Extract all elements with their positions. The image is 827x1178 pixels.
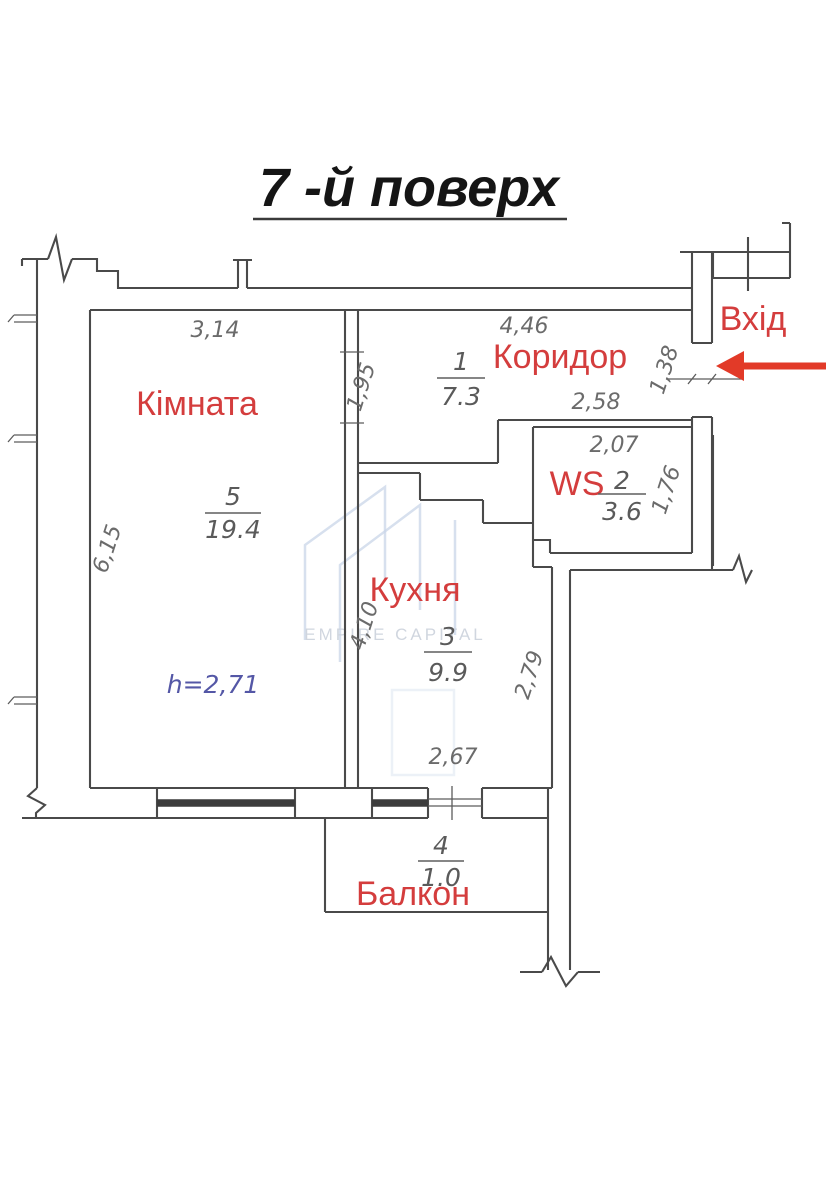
- floor-plan: EMPIRE CAPITAL 7 -й поверх: [0, 0, 827, 1178]
- entrance-arrow: [716, 351, 826, 381]
- watermark-text: EMPIRE CAPITAL: [304, 625, 486, 644]
- floor-plan-page: EMPIRE CAPITAL 7 -й поверх: [0, 0, 827, 1178]
- room-number-kukhnia: 3: [440, 622, 456, 651]
- wall-junction-tick: [8, 697, 37, 704]
- wall-kitchen-top-steps: [420, 473, 533, 523]
- dim-ws-top: 2,07: [590, 433, 639, 458]
- room-number-balkon: 4: [433, 831, 449, 860]
- balcony-door: [428, 786, 482, 820]
- room-number-ws: 2: [614, 466, 630, 495]
- room-number-korydor: 1: [453, 347, 469, 376]
- stairwell-walls: [680, 223, 790, 291]
- dim-kitchen-bottom: 2,67: [429, 745, 478, 770]
- wall-junction-tick: [8, 435, 37, 442]
- room-area-balkon: 1.0: [421, 863, 461, 892]
- wall-corridor-bottom-left: [358, 463, 498, 473]
- dim-ws-right: 1,76: [647, 463, 686, 517]
- stairwell: [680, 223, 790, 291]
- room-number-kimnata: 5: [225, 482, 241, 511]
- wall-exterior-break: [570, 556, 752, 582]
- room-label-kukhnia: Кухня: [370, 571, 461, 609]
- dim-corridor-left: 1,95: [342, 360, 381, 414]
- dim-room-top: 3,14: [191, 318, 240, 343]
- watermark-logo: EMPIRE CAPITAL: [304, 487, 486, 775]
- room-area-kimnata: 19.4: [205, 515, 261, 544]
- room-numbers: 5 19.4 1 7.3 2 3.6 3 9.9 4 1.0: [205, 347, 646, 892]
- wall-tick-top: [233, 260, 252, 288]
- dim-corridor-bottom: 2,58: [572, 390, 621, 415]
- wall-top-outer: [22, 259, 692, 288]
- wall-junction-tick: [8, 315, 37, 322]
- room-label-korydor: Коридор: [493, 338, 627, 376]
- room-area-ws: 3.6: [602, 497, 642, 526]
- dim-kitchen-right: 2,79: [510, 648, 549, 702]
- dim-corridor-top: 4,46: [500, 314, 549, 339]
- wall-break-bottom-left: [28, 788, 45, 818]
- dim-entrance-opening: 1,38: [645, 343, 684, 397]
- dimension-labels: 3,14 6,15 4,46 1,95 2,58 1,38 2,07 1,76 …: [88, 314, 686, 770]
- entrance-dim-line: [666, 374, 742, 384]
- page-title: 7 -й поверх: [259, 158, 561, 218]
- wall-break-balcony: [520, 957, 600, 986]
- wall-entrance: [692, 252, 712, 570]
- entrance-label: Вхід: [720, 300, 787, 338]
- room-label-kimnata: Кімната: [136, 385, 258, 423]
- room-area-kukhnia: 9.9: [428, 658, 468, 687]
- ceiling-height-note: h=2,71: [167, 670, 259, 699]
- wall-break-top: [48, 237, 72, 280]
- room-area-korydor: 7.3: [441, 382, 481, 411]
- entrance-arrow-head: [716, 351, 744, 381]
- room-label-ws: WS: [550, 465, 605, 503]
- dim-room-left: 6,15: [88, 522, 127, 576]
